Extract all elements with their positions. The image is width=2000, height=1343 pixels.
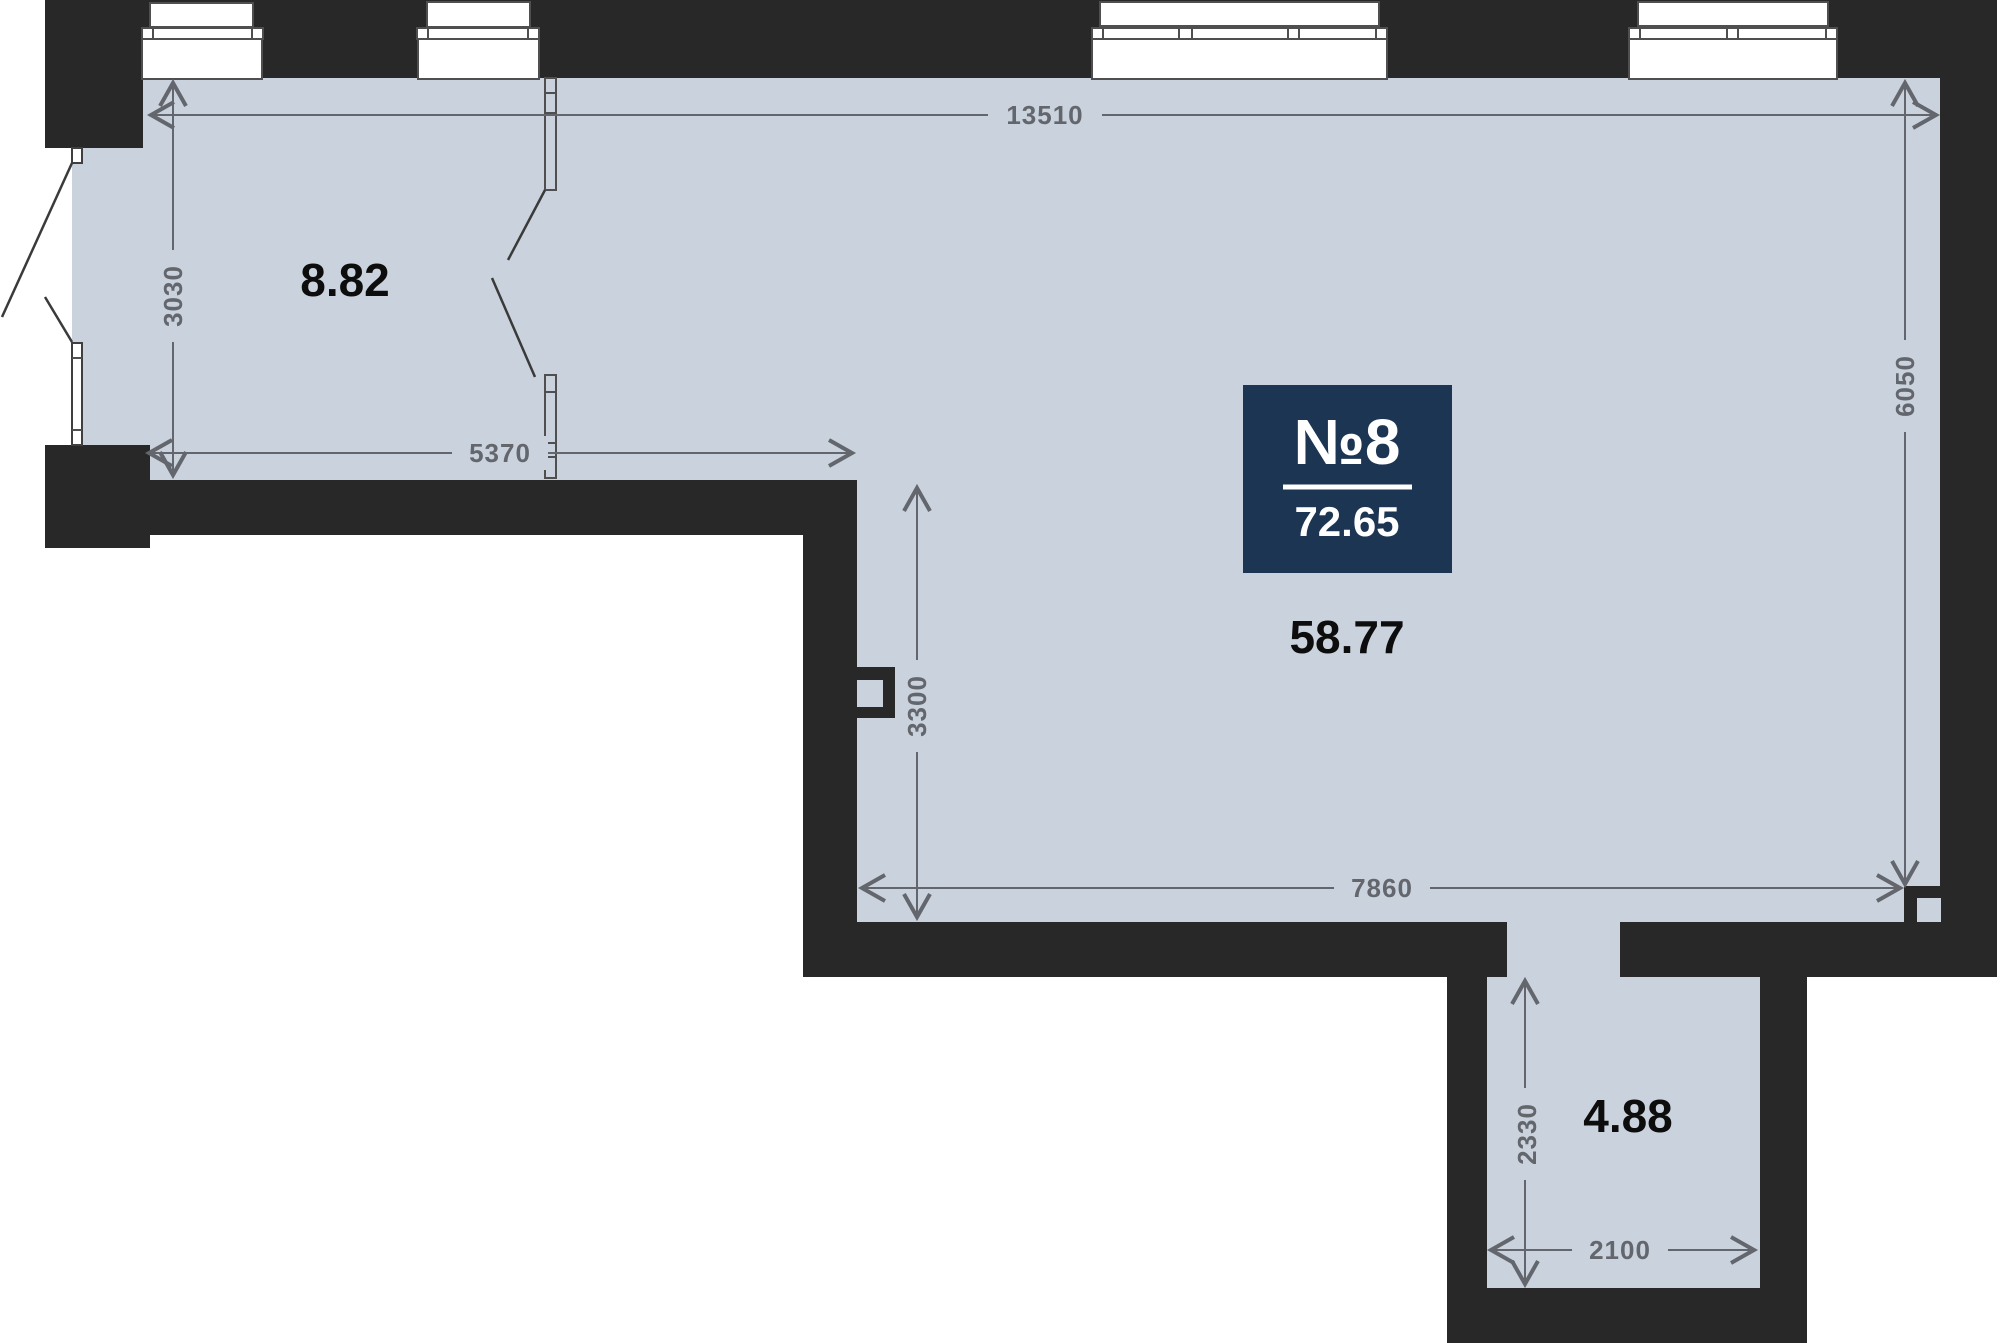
wall-bottom-right-band [1620,922,1997,977]
unit-total-area: 72.65 [1294,498,1399,545]
dimension-left-room-width: 5370 [469,438,531,468]
room-area-label-main: 58.77 [1289,611,1404,663]
unit-number: №8 [1294,406,1401,478]
window-4 [1629,2,1837,79]
unit-badge[interactable]: №8 72.65 [1243,385,1452,573]
wall-under-left-room [143,480,857,535]
dimension-right-side-height: 6050 [1890,355,1920,417]
wall-notch-vertical [803,535,857,922]
dimension-left-room-height: 3030 [158,265,188,327]
wall-left-bottom-pier [45,445,150,548]
room-area-label-left: 8.82 [300,254,390,306]
window-1 [142,3,263,79]
dimension-corridor-width: 2100 [1589,1235,1651,1265]
wall-corridor-bottom [1447,1288,1807,1343]
floor-plan-page: 13510 3030 5370 3300 6050 7860 2330 210 [0,0,2000,1343]
dimension-main-bottom-width: 7860 [1351,873,1413,903]
wall-top-left-pier [45,0,143,148]
dimension-notch-height: 3300 [902,675,932,737]
wall-column-shaft [857,680,883,707]
window-2 [417,2,539,79]
window-3 [1092,2,1387,79]
wall-bottom-mid-band [803,922,1507,977]
dimension-top-width: 13510 [1006,100,1083,130]
floor-plan-svg: 13510 3030 5370 3300 6050 7860 2330 210 [0,0,2000,1343]
corner-pilaster-shaft [1917,898,1941,922]
balcony-door [2,148,82,445]
wall-right [1940,0,1997,922]
room-area-label-bottom: 4.88 [1583,1090,1673,1142]
dimension-corridor-height: 2330 [1512,1103,1542,1165]
